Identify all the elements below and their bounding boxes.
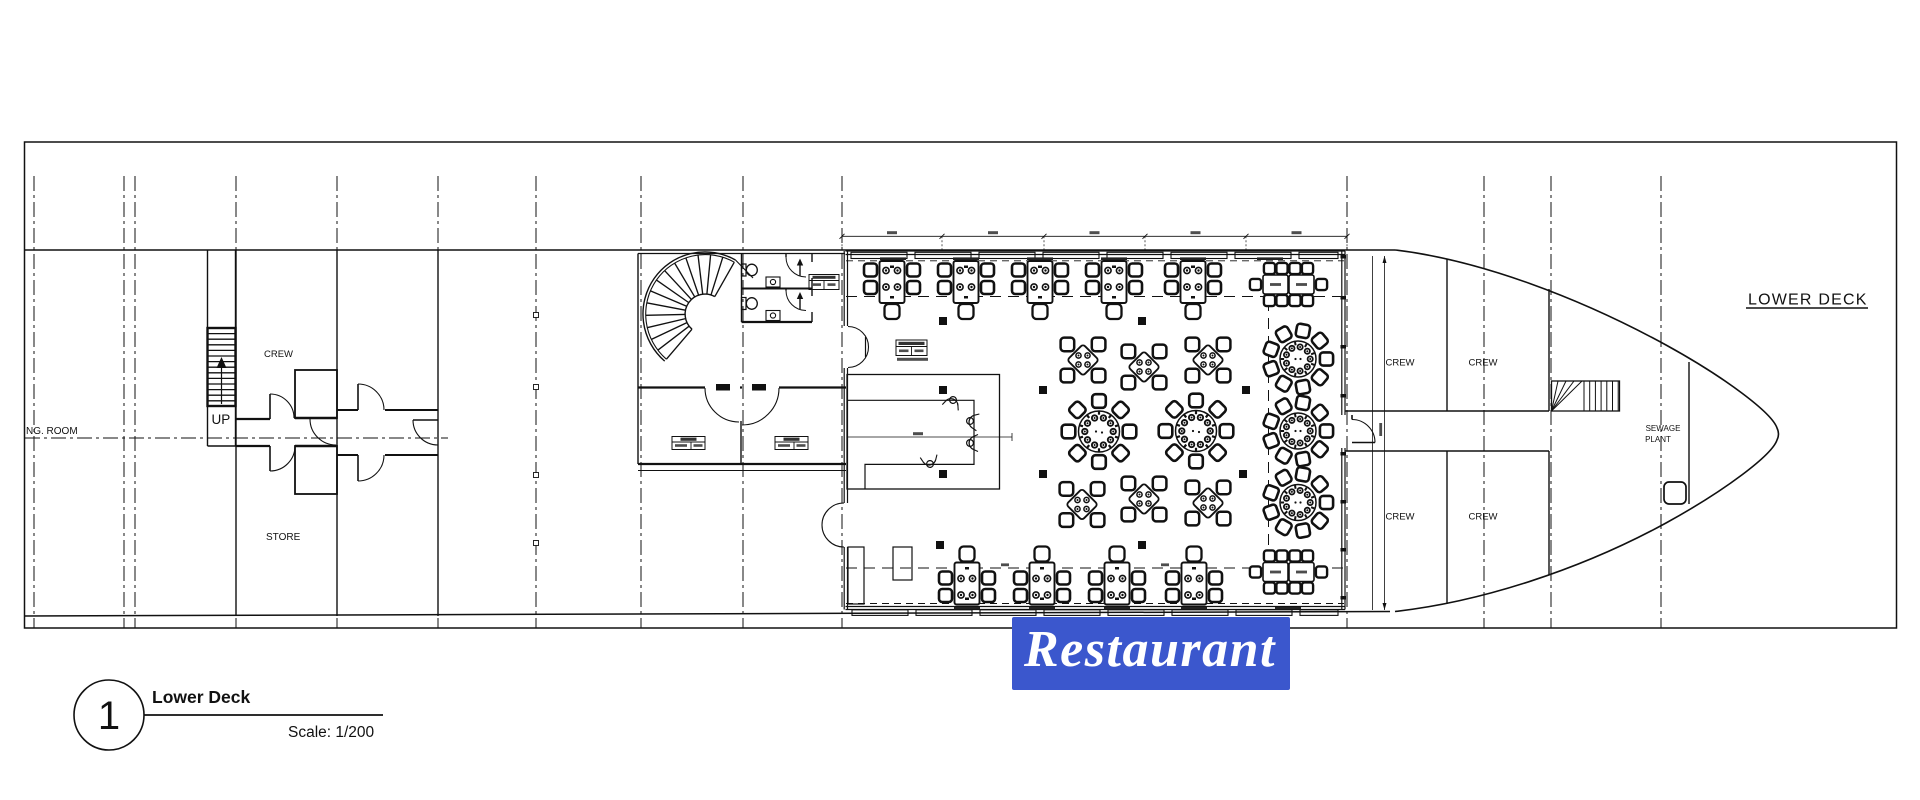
svg-text:SEWAGE: SEWAGE bbox=[1646, 424, 1681, 433]
svg-text:Lower Deck: Lower Deck bbox=[152, 687, 250, 707]
svg-text:PLANT: PLANT bbox=[1645, 435, 1671, 444]
svg-text:Scale: 1/200: Scale: 1/200 bbox=[288, 724, 375, 741]
svg-text:CREW: CREW bbox=[1468, 358, 1497, 369]
svg-text:CREW: CREW bbox=[1385, 512, 1414, 523]
svg-text:Restaurant: Restaurant bbox=[1023, 621, 1276, 678]
svg-text:STORE: STORE bbox=[266, 532, 301, 543]
svg-text:CREW: CREW bbox=[1468, 512, 1497, 523]
svg-text:1: 1 bbox=[98, 694, 120, 738]
svg-text:LOWER DECK: LOWER DECK bbox=[1748, 292, 1868, 309]
svg-text:NG. ROOM: NG. ROOM bbox=[26, 426, 78, 437]
svg-text:UP: UP bbox=[212, 412, 231, 427]
svg-text:CREW: CREW bbox=[1385, 358, 1414, 369]
svg-text:CREW: CREW bbox=[264, 349, 293, 360]
